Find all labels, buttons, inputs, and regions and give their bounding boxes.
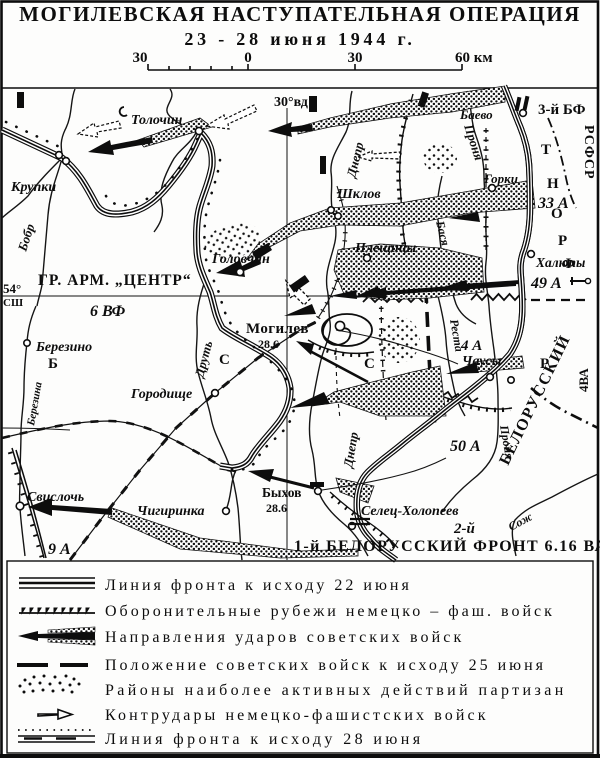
svg-text:Р: Р xyxy=(558,233,567,249)
svg-text:Головчин: Головчин xyxy=(211,252,270,267)
svg-text:Линия фронта к исходу 22 июня: Линия фронта к исходу 22 июня xyxy=(105,577,412,594)
svg-text:23 - 28 июня 1944 г.: 23 - 28 июня 1944 г. xyxy=(184,29,415,49)
svg-text:Чигиринка: Чигиринка xyxy=(137,504,205,519)
svg-text:60 км: 60 км xyxy=(455,50,493,66)
svg-text:6 ВФ: 6 ВФ xyxy=(90,303,126,320)
svg-text:Н: Н xyxy=(547,176,559,192)
svg-text:30: 30 xyxy=(133,50,148,66)
svg-text:1-й БЕЛОРУССКИЙ ФРОНТ 6.16 ВА: 1-й БЕЛОРУССКИЙ ФРОНТ 6.16 ВА xyxy=(294,536,600,555)
svg-text:Чаусы: Чаусы xyxy=(462,354,502,369)
svg-text:Толочин: Толочин xyxy=(131,113,183,128)
svg-text:Могилев: Могилев xyxy=(246,321,309,337)
svg-text:С: С xyxy=(364,356,375,372)
svg-text:О: О xyxy=(551,206,563,222)
svg-text:30: 30 xyxy=(348,50,363,66)
svg-text:РСФСР: РСФСР xyxy=(581,125,596,180)
svg-text:Халюпы: Халюпы xyxy=(535,255,585,270)
svg-text:Крупки: Крупки xyxy=(10,180,56,195)
svg-text:Свислочь: Свислочь xyxy=(27,490,84,505)
svg-text:СШ: СШ xyxy=(3,297,23,309)
svg-text:Линия фронта к исходу 28 июня: Линия фронта к исходу 28 июня xyxy=(105,731,423,748)
svg-text:3-й БФ: 3-й БФ xyxy=(538,102,586,118)
svg-text:Баево: Баево xyxy=(459,107,493,122)
svg-text:Городище: Городище xyxy=(130,387,192,402)
svg-text:Направления ударов советских в: Направления ударов советских войск xyxy=(105,629,464,646)
svg-text:Б: Б xyxy=(48,356,58,372)
svg-text:49 А: 49 А xyxy=(530,275,562,292)
svg-text:Горки: Горки xyxy=(483,171,518,186)
svg-text:С: С xyxy=(219,352,230,368)
svg-text:0: 0 xyxy=(244,50,252,66)
svg-text:54°: 54° xyxy=(3,281,21,296)
svg-text:Контрудары немецко-фашистских: Контрудары немецко-фашистских войск xyxy=(105,707,489,724)
svg-text:МОГИЛЕВСКАЯ НАСТУПАТЕЛЬНАЯ ОПЕ: МОГИЛЕВСКАЯ НАСТУПАТЕЛЬНАЯ ОПЕРАЦИЯ xyxy=(19,2,581,26)
svg-text:ГР. АРМ. „ЦЕНТР“: ГР. АРМ. „ЦЕНТР“ xyxy=(38,272,192,289)
svg-text:2-й: 2-й xyxy=(453,521,475,537)
svg-text:Селец-Холопеев: Селец-Холопеев xyxy=(361,504,459,519)
svg-text:50 А: 50 А xyxy=(450,438,481,455)
svg-text:Плещицы: Плещицы xyxy=(354,241,417,256)
svg-text:28.6: 28.6 xyxy=(266,501,287,515)
svg-text:Шклов: Шклов xyxy=(336,187,381,202)
svg-text:Быхов: Быхов xyxy=(262,485,301,500)
svg-text:Положение советских войск к ис: Положение советских войск к исходу 25 ию… xyxy=(105,657,546,674)
svg-text:Оборонительные рубежи немецко: Оборонительные рубежи немецко – фаш. вой… xyxy=(105,603,555,620)
svg-text:30°вд: 30°вд xyxy=(274,95,308,110)
svg-text:Березино: Березино xyxy=(35,340,92,355)
svg-text:4ВА: 4ВА xyxy=(576,368,591,392)
svg-text:28.6: 28.6 xyxy=(258,337,279,351)
svg-text:4 А: 4 А xyxy=(460,338,482,354)
svg-text:Т: Т xyxy=(541,142,551,158)
svg-text:Районы наиболее активных дейст: Районы наиболее активных действий партиз… xyxy=(105,682,567,699)
svg-text:9 А: 9 А xyxy=(48,541,71,558)
svg-text:Ф: Ф xyxy=(562,256,575,272)
